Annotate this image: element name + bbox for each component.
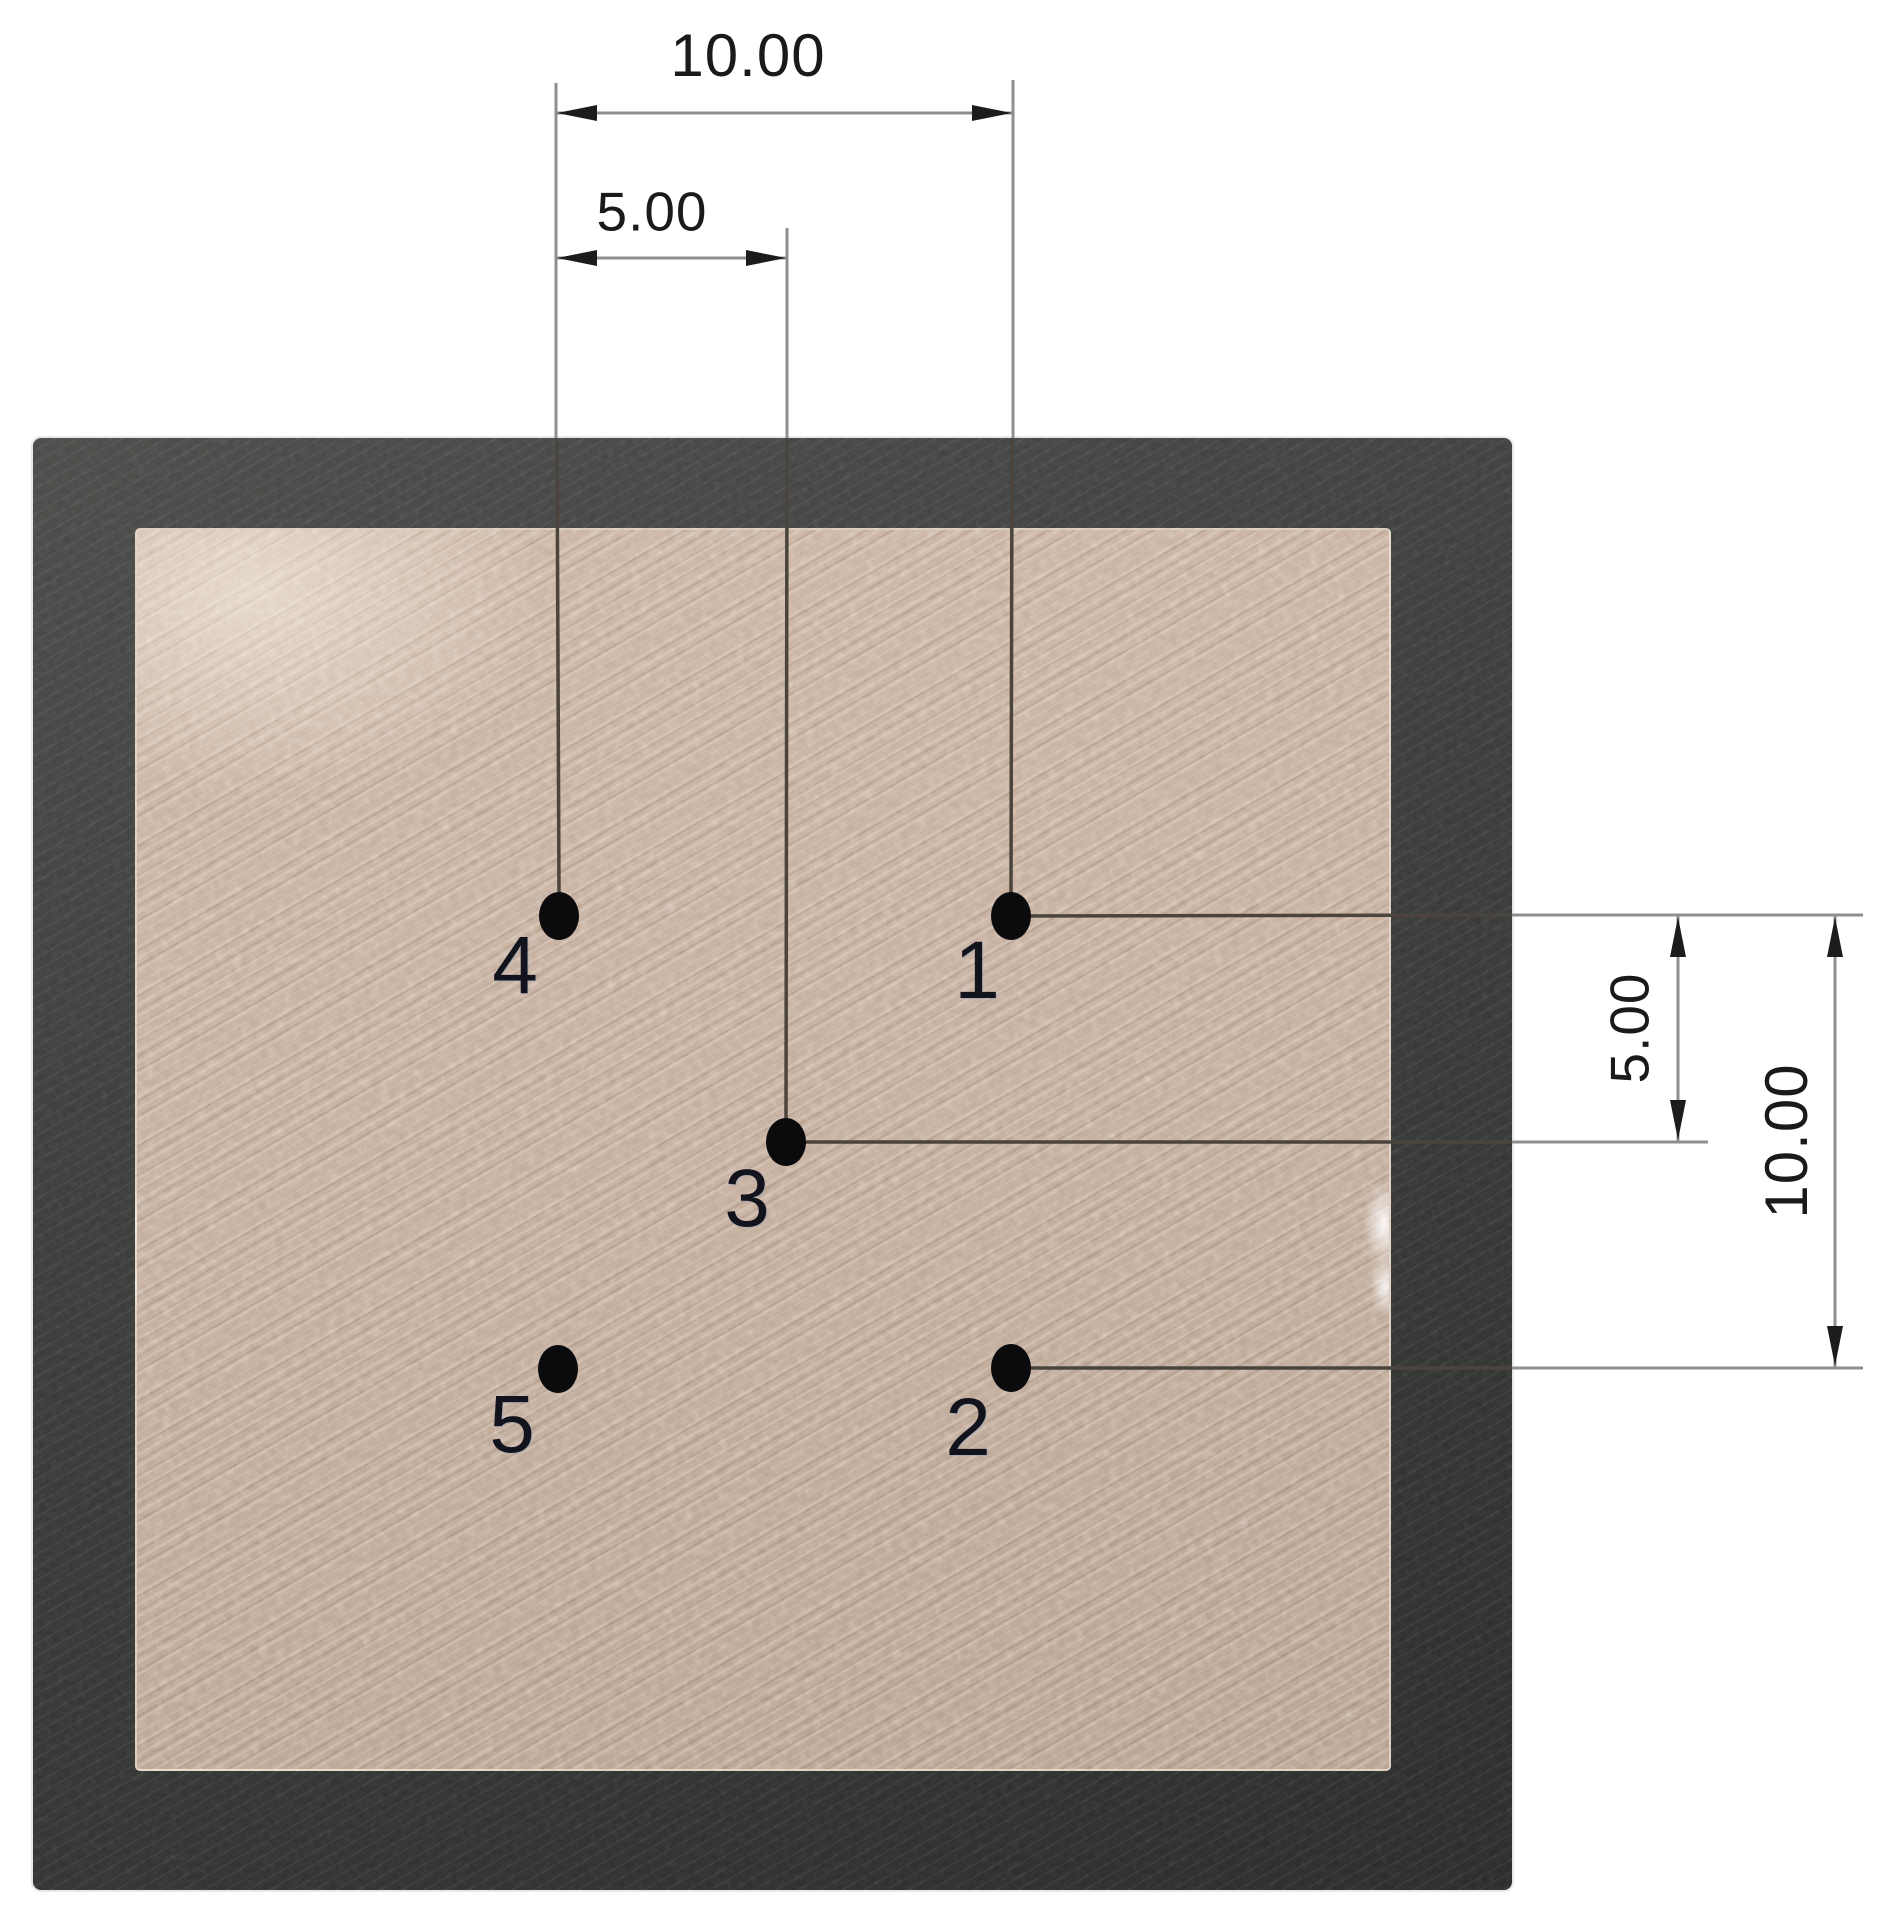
dimension-label-top-outer: 10.00 bbox=[670, 26, 825, 86]
dimension-label-top-inner: 5.00 bbox=[596, 185, 707, 240]
grain-texture bbox=[137, 530, 1389, 1769]
figure-canvas: 1 2 3 4 5 10.00 5.00 5.00 10.00 bbox=[0, 0, 1896, 1931]
arrowhead bbox=[1670, 917, 1686, 957]
point-label-2: 2 bbox=[945, 1387, 991, 1469]
point-label-5: 5 bbox=[489, 1384, 535, 1466]
point-label-1: 1 bbox=[954, 930, 1000, 1012]
measurement-point-dot-3 bbox=[766, 1118, 806, 1166]
measurement-point-dot-4 bbox=[539, 892, 579, 940]
arrowhead bbox=[1827, 1326, 1843, 1366]
specimen-photo bbox=[33, 438, 1512, 1890]
dimension-label-right-inner: 5.00 bbox=[1603, 972, 1658, 1083]
arrowhead bbox=[1670, 1100, 1686, 1140]
point-label-3: 3 bbox=[724, 1158, 770, 1240]
point-label-4: 4 bbox=[492, 925, 538, 1007]
dimension-label-right-outer: 10.00 bbox=[1757, 1063, 1817, 1218]
arrowhead bbox=[557, 250, 597, 266]
measurement-point-dot-5 bbox=[538, 1345, 578, 1393]
specimen-surface bbox=[135, 528, 1391, 1771]
measurement-point-dot-2 bbox=[991, 1344, 1031, 1392]
arrowhead bbox=[972, 105, 1012, 121]
arrowhead bbox=[746, 250, 786, 266]
arrowhead bbox=[557, 105, 597, 121]
arrowhead bbox=[1827, 917, 1843, 957]
